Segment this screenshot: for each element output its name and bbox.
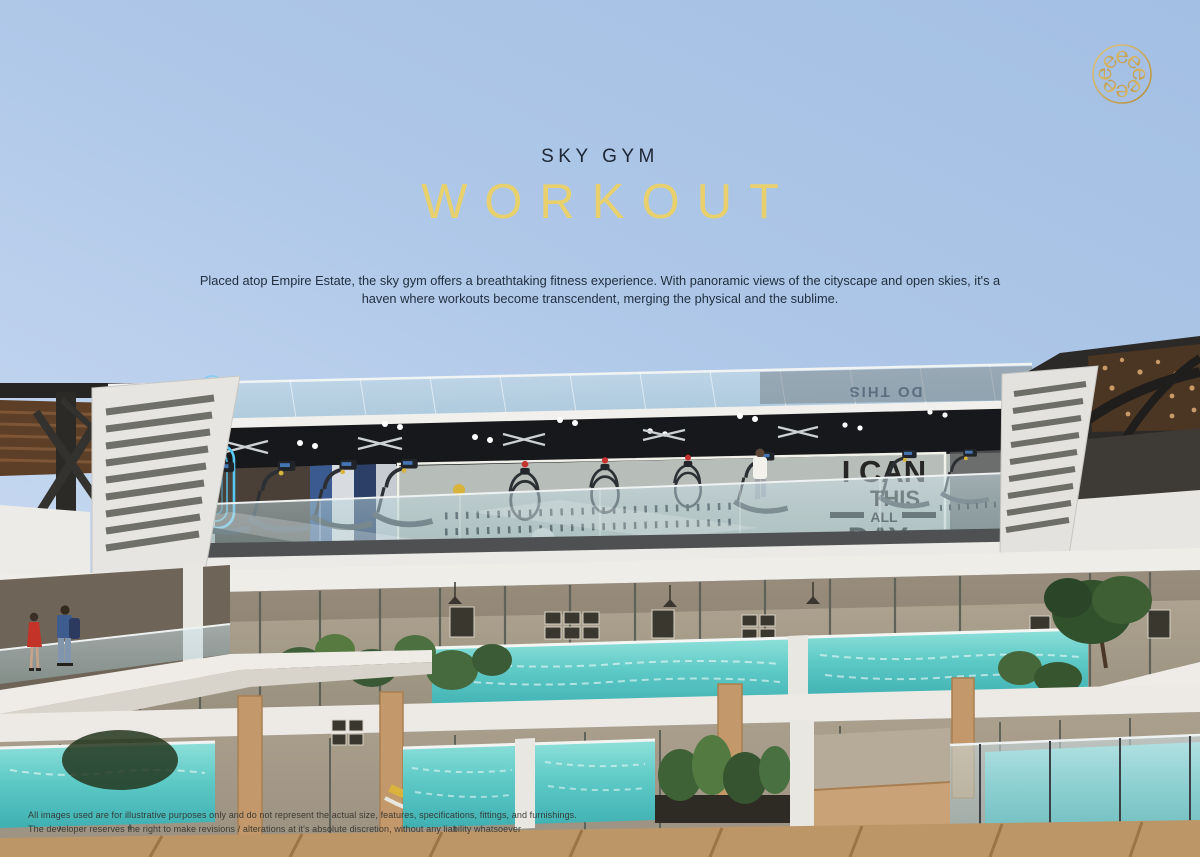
dark-tree — [62, 730, 178, 790]
right-canopy — [1000, 336, 1200, 578]
disclaimer-line-2: The developer reserves the right to make… — [28, 823, 577, 837]
description-line-1: Placed atop Empire Estate, the sky gym o… — [0, 272, 1200, 290]
description-line-2: haven where workouts become transcendent… — [0, 290, 1200, 308]
empire-estate-logo-icon: e e e e e e e e — [1086, 38, 1158, 110]
disclaimer-line-1: All images used are for illustrative pur… — [28, 809, 577, 823]
section-description: Placed atop Empire Estate, the sky gym o… — [0, 272, 1200, 307]
page-title: WORKOUT — [0, 174, 1200, 230]
white-pillar — [790, 720, 814, 840]
legal-disclaimer: All images used are for illustrative pur… — [28, 809, 577, 836]
section-eyebrow: SKY GYM — [0, 146, 1200, 168]
brochure-page: DO THIS I CAN — [0, 0, 1200, 857]
sky-gym-building-render: DO THIS I CAN — [0, 0, 1200, 857]
reflected-do-this: DO THIS — [848, 383, 923, 400]
sky-gym-level: DO THIS I CAN — [92, 364, 1046, 588]
